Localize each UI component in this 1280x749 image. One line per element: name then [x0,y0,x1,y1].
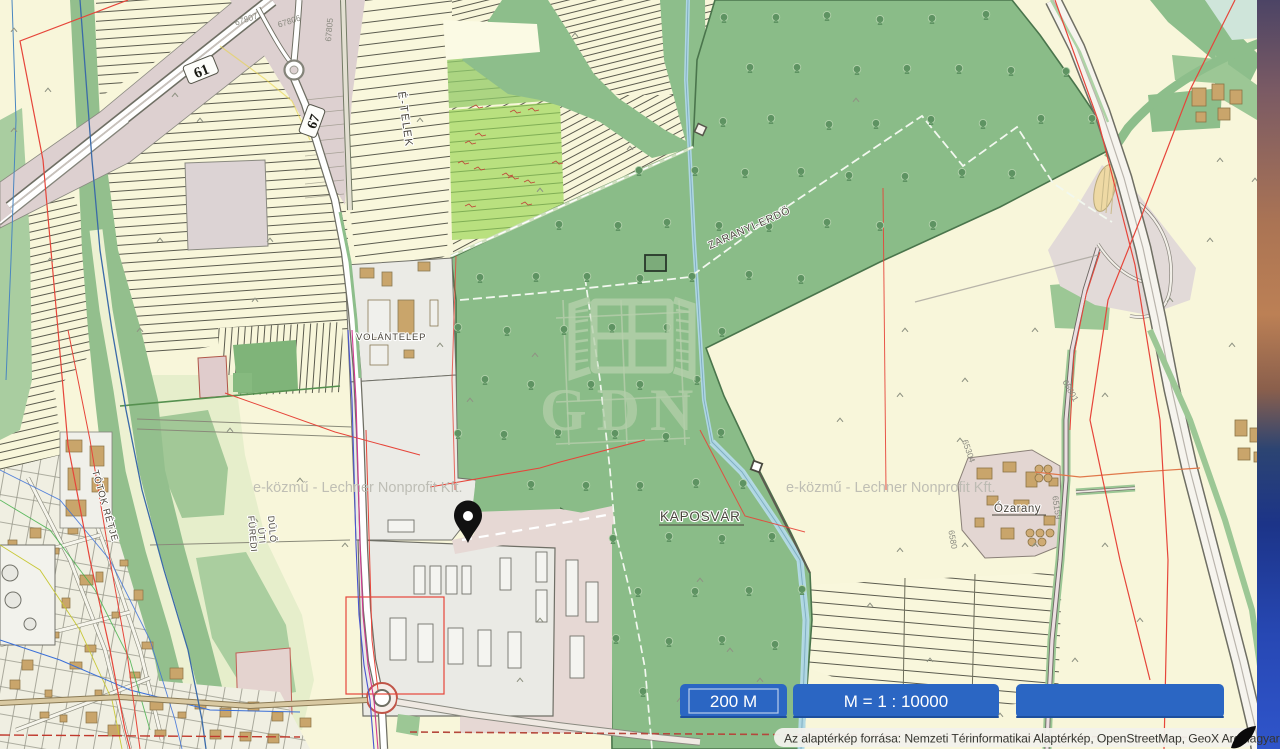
svg-text:67805: 67805 [323,17,335,42]
svg-text:Ózarany: Ózarany [994,502,1041,515]
svg-text:200 M: 200 M [710,692,757,711]
svg-text:e-közmű - Lechner Nonprofit Kf: e-közmű - Lechner Nonprofit Kft. [786,480,996,496]
svg-text:ÚTI: ÚTI [256,527,267,544]
svg-text:VOLÁNTELEP: VOLÁNTELEP [356,332,426,343]
svg-text:M = 1 : 10000: M = 1 : 10000 [844,692,948,711]
svg-text:e-közmű - Lechner Nonprofit Kf: e-közmű - Lechner Nonprofit Kft. [253,480,463,496]
svg-text:KAPOSVÁR: KAPOSVÁR [660,509,741,524]
svg-text:Az alaptérkép forrása: Nemzeti: Az alaptérkép forrása: Nemzeti Térinform… [784,732,1280,746]
svg-text:GDN: GDN [540,377,703,443]
